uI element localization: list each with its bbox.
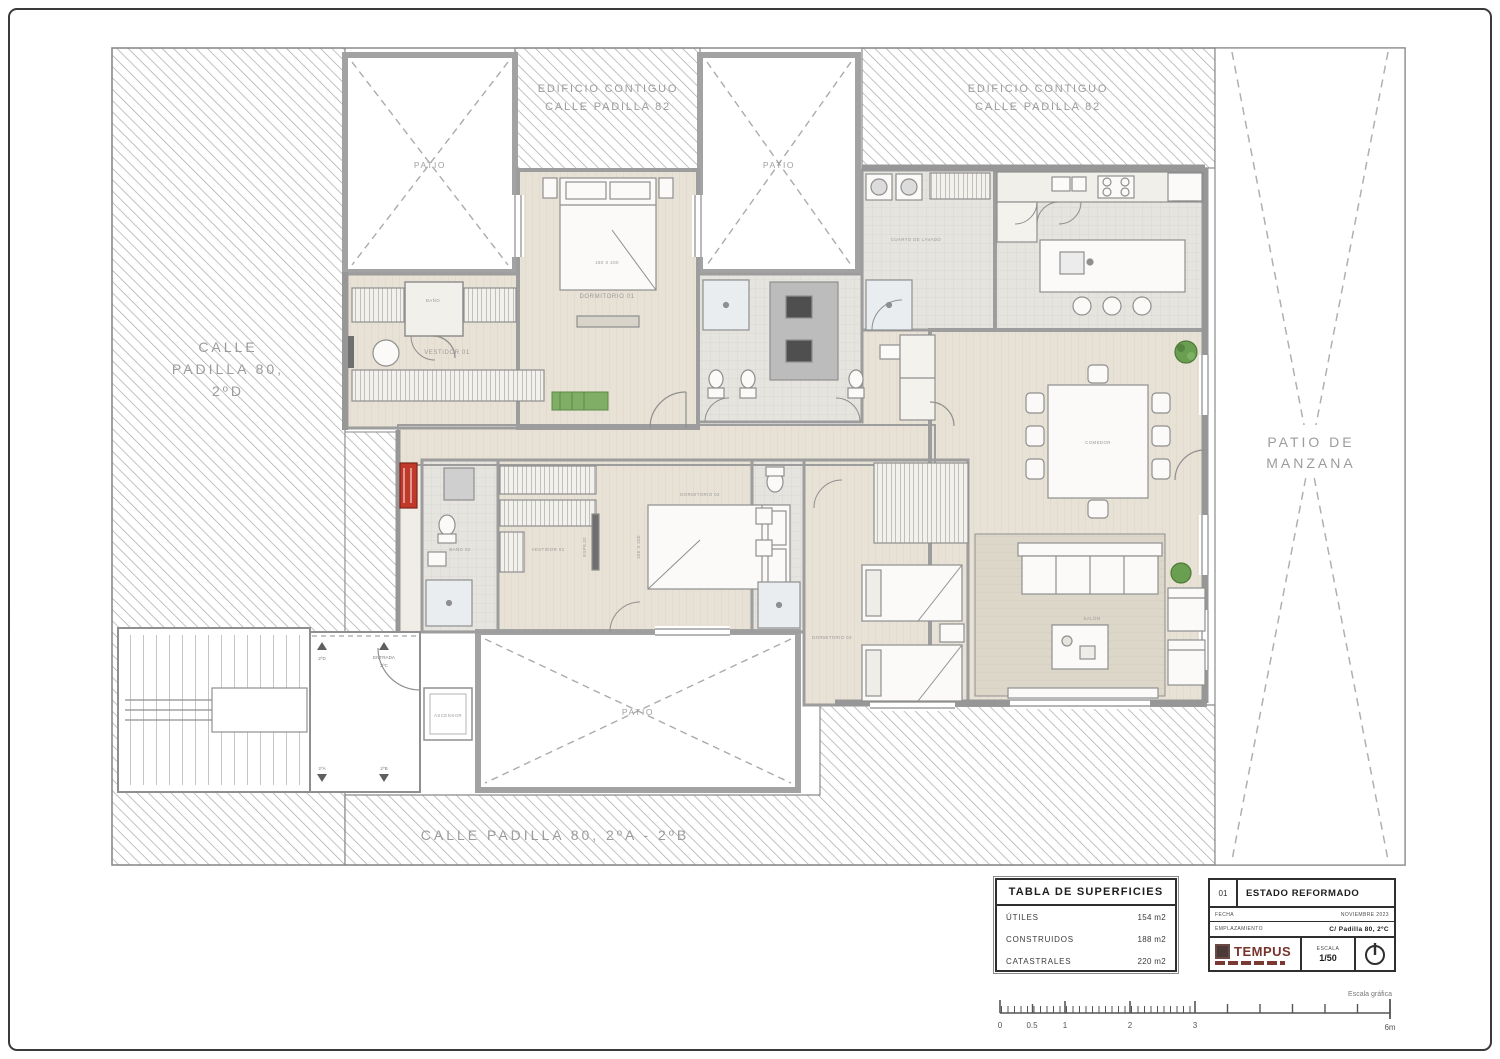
salon-label: SALÓN — [1084, 616, 1101, 621]
escala-label: ESCALA — [1317, 946, 1340, 952]
table-row: ÚTILES 154 m2 — [997, 906, 1175, 928]
left-street-line2: PADILLA 80, — [172, 361, 284, 377]
entrada-label-1: ENTRADA — [373, 655, 396, 660]
logo-tagline — [1215, 961, 1285, 965]
escala-value: 1/50 — [1319, 953, 1337, 963]
espejo-label: ESPEJO — [582, 537, 587, 557]
scale-tick-05: 0.5 — [1026, 1021, 1038, 1030]
entrada-label-2: 2ºC — [380, 663, 388, 668]
bottom-street-label: CALLE PADILLA 80, 2ºA - 2ºB — [421, 827, 689, 843]
window — [655, 626, 730, 638]
unit-2d-label: 2ºD — [318, 656, 326, 661]
patio-manzana-label-2: MANZANA — [1266, 455, 1355, 471]
title-block: 01 ESTADO REFORMADO FECHA NOVIEMBRE 2023… — [1208, 878, 1396, 972]
patio-top-left: PATIO — [345, 55, 515, 272]
emplazamiento-row: EMPLAZAMIENTO C/ Padilla 80, 2ºC — [1210, 922, 1394, 938]
surface-table: TABLA DE SUPERFICIES ÚTILES 154 m2 CONST… — [995, 878, 1177, 972]
emplazamiento-label: EMPLAZAMIENTO — [1215, 926, 1263, 932]
scale-tick-6m: 6m — [1384, 1023, 1395, 1032]
utiles-value: 154 m2 — [1138, 913, 1166, 922]
window — [512, 195, 524, 257]
dormitorio-01-label: DORMITORIO 01 — [579, 294, 634, 300]
adjacent-top-right-line2: CALLE PADILLA 82 — [975, 101, 1101, 113]
elevator: ASCENSOR — [424, 688, 472, 740]
patio-bottom: PATIO — [478, 632, 798, 790]
patio-3-label: PATIO — [622, 707, 654, 717]
window — [692, 195, 704, 257]
cuarto-lavado-label: CUARTO DE LAVADO — [891, 237, 942, 242]
patio-2-label: PATIO — [763, 160, 795, 170]
drawing-sheet: PATIO DE MANZANA — [0, 0, 1500, 1059]
bed-02-size-label: 160 X 200 — [636, 535, 641, 559]
patio-manzana-label-1: PATIO DE — [1267, 434, 1354, 450]
scale-caption: Escala gráfica — [1348, 991, 1392, 998]
left-street-line1: CALLE — [198, 339, 257, 355]
scale-tick-0: 0 — [998, 1021, 1003, 1030]
bed-01-size-label: 180 X 200 — [595, 260, 619, 265]
window — [1010, 697, 1150, 709]
scale-tick-2: 2 — [1128, 1021, 1133, 1030]
bano-02-label: BAÑO 02 — [449, 547, 471, 552]
table-row: CONSTRUIDOS 188 m2 — [997, 928, 1175, 950]
unit-2a-label: 2ºA — [318, 766, 326, 771]
left-street-line3: 2ºD — [212, 383, 244, 399]
vestidor-02-label: VESTIDOR 02 — [532, 547, 565, 552]
adjacent-top-right-line1: EDIFICIO CONTIGUO — [968, 83, 1109, 95]
construidos-label: CONSTRUIDOS — [1006, 935, 1074, 944]
construidos-value: 188 m2 — [1138, 935, 1166, 944]
patio-top-middle: PATIO — [700, 55, 858, 272]
adjacent-top-left-line2: CALLE PADILLA 82 — [545, 101, 671, 113]
fecha-label: FECHA — [1215, 912, 1234, 918]
sheet-number: 01 — [1210, 880, 1238, 906]
stairs — [125, 635, 307, 785]
dormitorio-03-label: DORMITORIO 03 — [812, 635, 852, 640]
emplazamiento-value: C/ Padilla 80, 2ºC — [1329, 926, 1389, 933]
fecha-row: FECHA NOVIEMBRE 2023 — [1210, 908, 1394, 922]
comedor-label: COMEDOR — [1085, 440, 1111, 445]
north-arrow-icon — [1362, 941, 1388, 967]
adjacent-top-left-line1: EDIFICIO CONTIGUO — [538, 83, 679, 95]
ascensor-label: ASCENSOR — [434, 713, 462, 718]
surface-table-title: TABLA DE SUPERFICIES — [997, 880, 1175, 906]
window — [1199, 355, 1211, 415]
title-block-footer: TEMPUS ESCALA 1/50 — [1210, 938, 1394, 970]
scale-tick-3: 3 — [1193, 1021, 1198, 1030]
dormitorio-02-label: DORMITORIO 02 — [680, 492, 720, 497]
unit-2b-label: 2ºB — [380, 766, 387, 771]
company-logo: TEMPUS — [1210, 938, 1302, 970]
scale-bar: 0 0.5 1 2 3 6m Escala gráfica — [998, 991, 1396, 1032]
catastrales-value: 220 m2 — [1138, 957, 1166, 966]
catastrales-label: CATASTRALES — [1006, 957, 1071, 966]
patio-de-manzana: PATIO DE MANZANA — [1215, 48, 1405, 865]
patio-1-label: PATIO — [414, 160, 446, 170]
logo-mark-icon — [1215, 944, 1230, 959]
sheet-title: ESTADO REFORMADO — [1238, 880, 1394, 906]
vestidor-01-label: VESTIDOR 01 — [424, 350, 470, 356]
window — [1199, 515, 1211, 575]
scale-cell: ESCALA 1/50 — [1302, 938, 1356, 970]
bano-label: BAÑO — [426, 298, 440, 303]
north-arrow-cell — [1356, 938, 1394, 970]
fecha-value: NOVIEMBRE 2023 — [1341, 912, 1389, 918]
scale-tick-1: 1 — [1063, 1021, 1068, 1030]
table-row: CATASTRALES 220 m2 — [997, 950, 1175, 972]
utiles-label: ÚTILES — [1006, 913, 1039, 922]
title-block-header: 01 ESTADO REFORMADO — [1210, 880, 1394, 908]
logo-text: TEMPUS — [1234, 944, 1291, 959]
